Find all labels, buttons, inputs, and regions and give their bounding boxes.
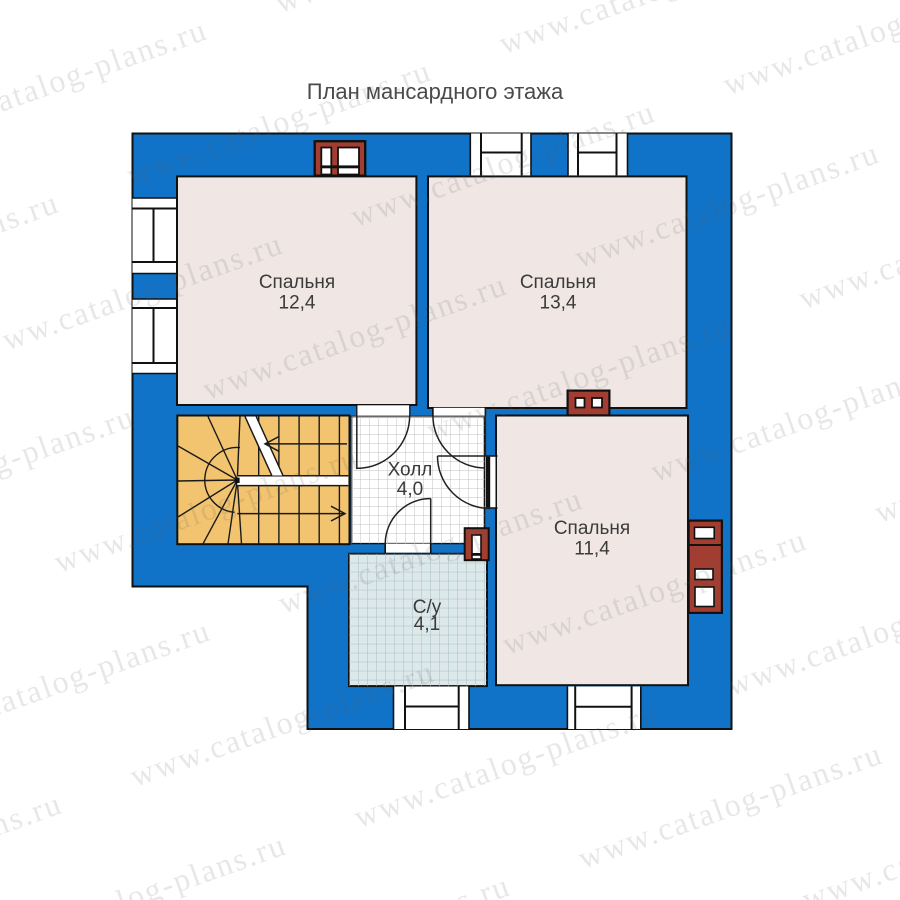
svg-text:4,1: 4,1 (414, 614, 440, 635)
svg-text:www.catalog-plans.ru: www.catalog-plans.ru (0, 785, 67, 900)
svg-text:www.catalog-plans.ru: www.catalog-plans.ru (722, 562, 900, 703)
svg-text:www.catalog-plans.ru: www.catalog-plans.ru (718, 0, 900, 102)
svg-text:12,4: 12,4 (279, 293, 316, 314)
svg-text:www.catalog-plans.ru: www.catalog-plans.ru (794, 175, 900, 316)
svg-text:www.catalog-plans.ru: www.catalog-plans.ru (0, 11, 212, 152)
svg-text:13,4: 13,4 (540, 293, 577, 314)
svg-text:Спальня: Спальня (259, 272, 335, 293)
svg-text:Холл: Холл (388, 460, 433, 481)
svg-text:www.catalog-plans.ru: www.catalog-plans.ru (0, 612, 215, 753)
svg-text:www.catalog-plans.ru: www.catalog-plans.ru (494, 0, 808, 61)
svg-text:4,0: 4,0 (397, 479, 423, 500)
svg-text:www.catalog-plans.ru: www.catalog-plans.ru (0, 826, 291, 900)
svg-text:11,4: 11,4 (574, 539, 610, 560)
svg-text:www.catalog-plans.ru: www.catalog-plans.ru (0, 398, 139, 539)
svg-text:www.catalog-plans.ru: www.catalog-plans.ru (573, 735, 887, 876)
svg-text:Спальня: Спальня (520, 272, 596, 293)
